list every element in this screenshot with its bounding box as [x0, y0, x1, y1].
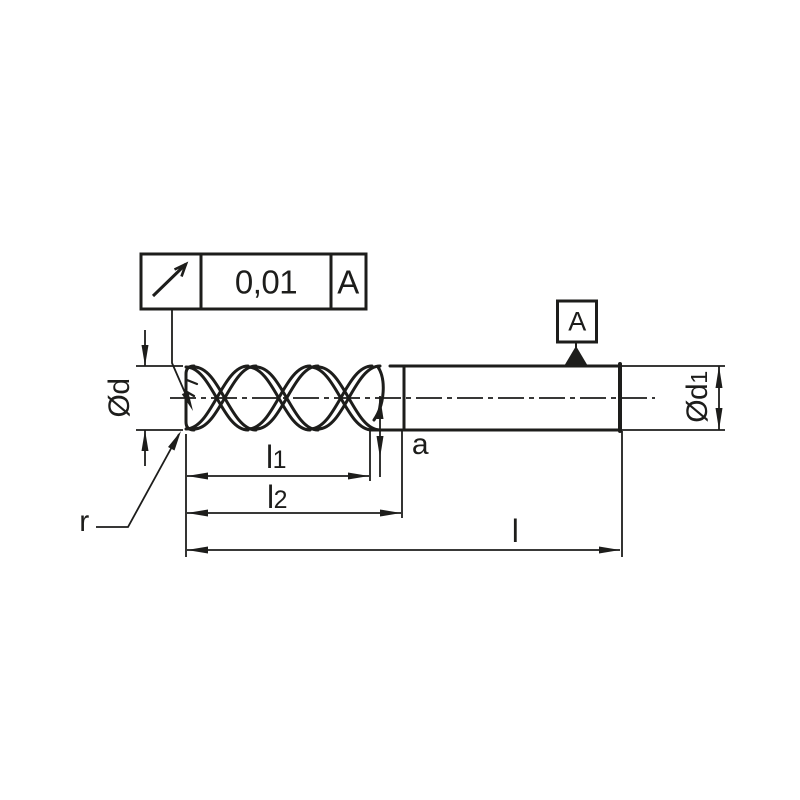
flute-length-label: l1 [266, 441, 286, 473]
neck-length-label: l2 [267, 481, 287, 513]
shank-diameter-text: Ød [681, 384, 714, 423]
flute-length-sub: 1 [273, 446, 286, 474]
od1-arrow-top [716, 366, 723, 388]
l1-arrow-left [187, 473, 208, 480]
l-arrow-left [187, 547, 208, 554]
l2-arrow-right [380, 510, 401, 517]
dimension-arrowheads [142, 345, 723, 554]
runout-value-label: 0,01 [235, 266, 297, 299]
overall-length-text: l [512, 513, 519, 549]
r-leader-arrowhead [168, 431, 181, 451]
l1-arrow-right [348, 473, 369, 480]
datum-triangle-icon [565, 346, 587, 365]
tolerance-leader [172, 309, 186, 395]
cutting-diameter-text: Ød [103, 378, 136, 417]
l2-arrow-left [187, 510, 208, 517]
a-dimension-label: a [412, 430, 428, 460]
neck-length-sub: 2 [274, 486, 287, 514]
od1-arrow-bottom [716, 408, 723, 430]
shank-diameter-label: Ød1 [683, 371, 713, 423]
neck-length-text: l [267, 479, 274, 515]
a-arrow-bottom [377, 436, 384, 458]
r-leader-line [96, 434, 179, 527]
cutting-diameter-label: Ød [105, 378, 135, 417]
flute-length-text: l [266, 439, 273, 475]
corner-radius-label: r [79, 507, 89, 537]
overall-length-label: l [512, 515, 519, 547]
od-arrow-bottom [142, 430, 149, 451]
shank-diameter-sub: 1 [686, 371, 712, 384]
runout-datum-label: A [337, 266, 359, 299]
dimension-lines [96, 330, 725, 557]
datum-label: A [568, 309, 586, 336]
l-arrow-right [599, 547, 620, 554]
technical-drawing-canvas: 0,01 A A Ød Ød1 l1 l2 l a r [0, 0, 800, 800]
flute-edge-ticks [187, 380, 197, 396]
od-arrow-top [142, 345, 149, 366]
circular-runout-icon [153, 264, 186, 296]
